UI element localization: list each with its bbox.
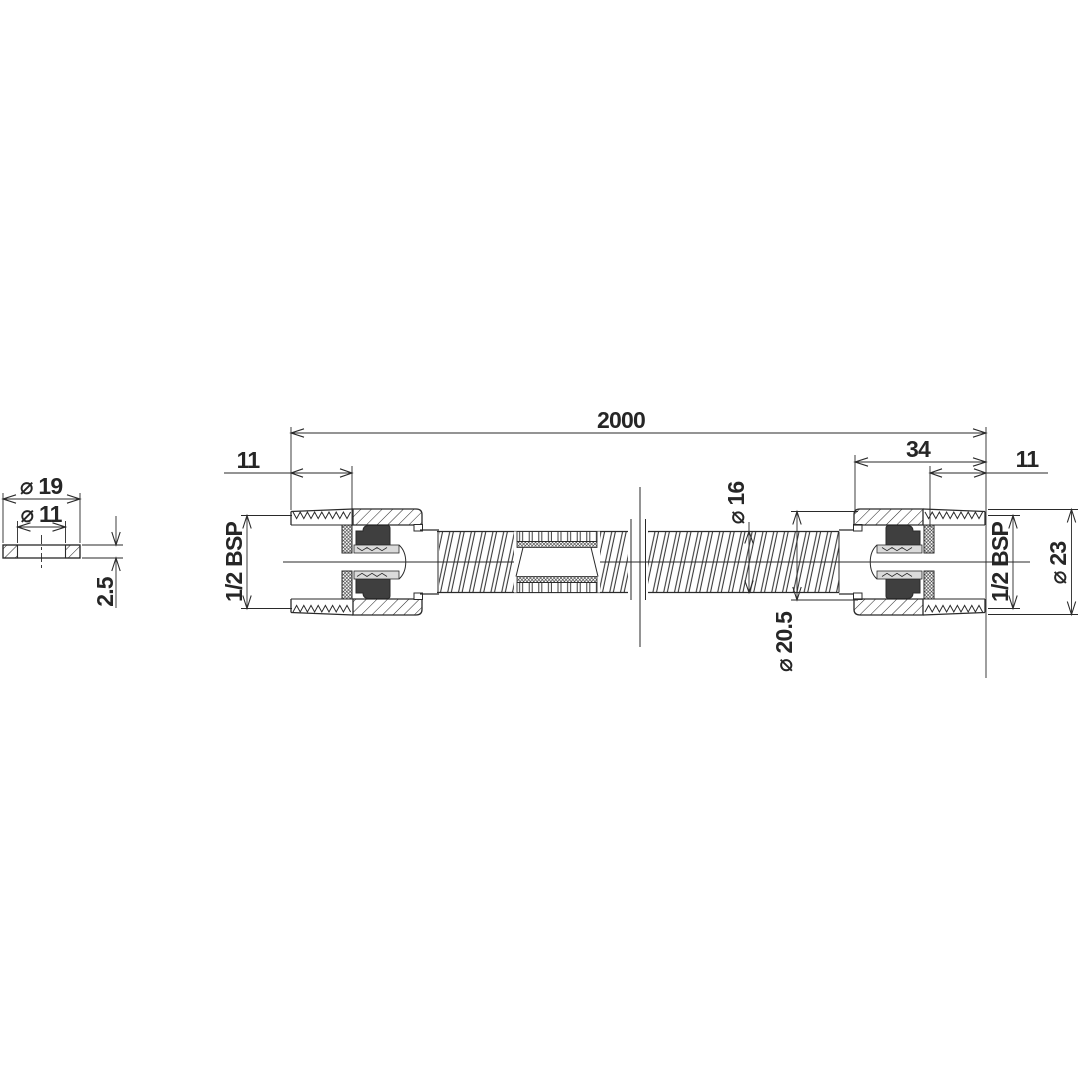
right-gasket-bottom	[886, 579, 920, 599]
right-thread-zigzag-top	[925, 512, 983, 519]
dim-overall-length: 2000	[291, 407, 986, 678]
dim-washer-thickness: 2.5	[82, 516, 123, 608]
left-nut-wall-top	[353, 509, 422, 525]
hose-break-lines	[631, 487, 646, 647]
left-ferrule-top	[342, 525, 352, 553]
washer-thickness-label: 2.5	[92, 576, 118, 607]
right-nut-wall-bottom	[854, 599, 923, 615]
right-fitting-length-label: 34	[906, 436, 931, 462]
washer-section-left	[3, 545, 18, 558]
right-thread-zigzag-bottom	[925, 605, 983, 612]
left-crimp-top	[354, 545, 399, 553]
cutaway-boxes-top	[517, 532, 597, 542]
hose-outer-dia-label: ⌀ 16	[723, 482, 749, 525]
left-ferrule-bottom	[342, 571, 352, 599]
drawing-canvas: ⌀ 19 ⌀ 11 2.5	[0, 0, 1080, 1080]
right-ferrule-bottom	[924, 571, 934, 599]
left-gasket-bottom	[356, 579, 390, 599]
right-gasket-top	[886, 526, 920, 546]
left-gasket-top	[356, 526, 390, 546]
cutaway-liner-bottom	[517, 577, 597, 583]
overall-length-label: 2000	[597, 407, 645, 433]
left-thread-size-label: 1/2 BSP	[221, 522, 247, 603]
right-ferrule-top	[924, 525, 934, 553]
right-thread-length-label: 11	[1016, 446, 1040, 472]
hose-assembly-view: 2000 11 34 11 1/2 BSP	[221, 407, 1078, 678]
nut-outer-dia-label: ⌀ 23	[1045, 542, 1071, 585]
sleeve-outer-dia-label: ⌀ 20.5	[771, 611, 797, 672]
cutaway-liner-top	[517, 542, 597, 548]
washer-outer-dia-label: ⌀ 19	[20, 473, 63, 499]
left-nut-wall-bottom	[353, 599, 422, 615]
hose-cutaway-section	[514, 532, 600, 593]
dim-left-thread-size: 1/2 BSP	[221, 516, 292, 609]
dim-left-thread-length: 11	[224, 447, 352, 527]
left-thread-zigzag-bottom	[293, 605, 351, 612]
technical-drawing: ⌀ 19 ⌀ 11 2.5	[0, 0, 1080, 1080]
left-thread-zigzag-top	[293, 512, 351, 519]
right-thread-size-label: 1/2 BSP	[987, 522, 1013, 603]
washer-inner-dia-label: ⌀ 11	[20, 501, 62, 527]
right-nut-wall-top	[854, 509, 923, 525]
left-thread-length-label: 11	[237, 447, 261, 473]
left-crimp-bottom	[354, 571, 399, 579]
dim-right-fitting-length: 34	[855, 436, 986, 513]
washer-detail-view: ⌀ 19 ⌀ 11 2.5	[3, 473, 123, 608]
washer-section-right	[66, 545, 81, 558]
cutaway-boxes-bottom	[517, 583, 597, 593]
